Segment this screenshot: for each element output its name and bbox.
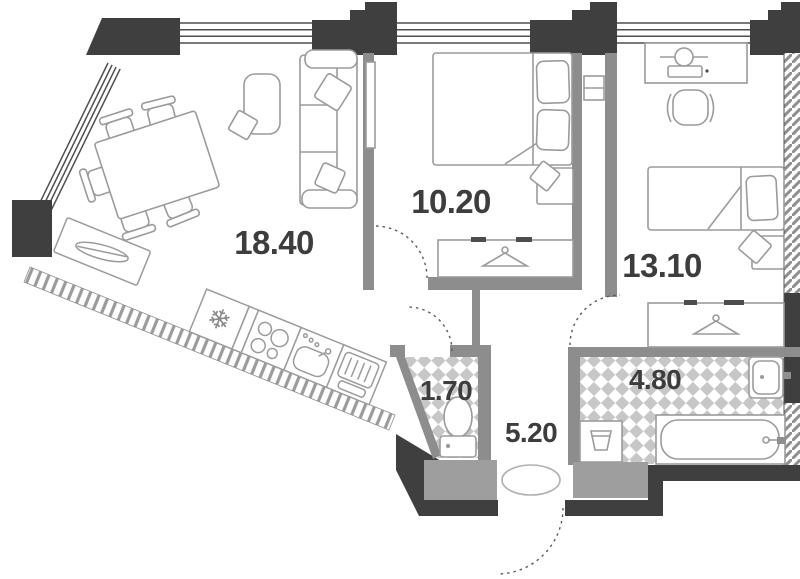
wall-bathroom-left	[568, 347, 580, 465]
window-1	[180, 23, 312, 43]
double-bed	[433, 53, 572, 165]
floor-plan-drawing: ❄	[0, 0, 800, 579]
wall-bedroom2-left	[605, 53, 617, 297]
wardrobe-handle	[471, 237, 486, 242]
wall-left-corner-block	[12, 200, 52, 257]
tv-panel	[366, 62, 375, 148]
room-label-bedroom-2: 13.10	[622, 247, 702, 285]
window-2	[397, 23, 530, 43]
wall-bathroom-bottom	[648, 465, 800, 481]
room-label-bathroom: 4.80	[629, 364, 681, 396]
room-label-living-kitchen: 18.40	[234, 224, 314, 262]
washing-machine	[580, 421, 622, 462]
bed-pillow	[536, 60, 569, 103]
wall-corner-top-left	[86, 18, 180, 55]
wall-wc-right	[478, 345, 491, 463]
bed-pillow	[536, 109, 569, 150]
wardrobe-handle	[516, 237, 532, 242]
wardrobe	[648, 300, 784, 347]
desk-chair	[668, 90, 714, 125]
wall-right-hatched-top	[784, 53, 800, 293]
wall-right-hatched-bottom	[784, 403, 800, 465]
desk	[645, 43, 747, 83]
door-swing-arc-wc	[408, 307, 452, 351]
block-below-wc	[424, 460, 497, 500]
block-right-of-entry	[573, 462, 648, 498]
keyboard	[668, 66, 702, 77]
rug	[502, 465, 560, 495]
nightstand	[530, 161, 573, 204]
floor-plan: ❄	[0, 0, 800, 579]
room-label-wc: 1.70	[420, 375, 472, 407]
door-swing-arc-bedroom2	[570, 295, 620, 345]
wardrobe-handle	[684, 300, 697, 305]
sink-faucet-icon	[783, 372, 791, 379]
room-label-bedroom: 10.20	[411, 183, 491, 221]
wall-corner-top-right	[750, 2, 800, 55]
bathtub	[656, 415, 786, 464]
door-swing-arc-bedroom1	[375, 226, 427, 278]
wall-wc-top-left	[390, 345, 405, 357]
wardrobe-handle	[724, 300, 744, 305]
room-label-hallway: 5.20	[505, 417, 557, 449]
nightstand	[738, 230, 784, 269]
wall-bottom-step	[648, 481, 663, 516]
bed-pillow	[746, 175, 778, 221]
window-3	[617, 23, 750, 43]
door-swing-arc-entry	[497, 508, 563, 574]
wardrobe	[438, 237, 573, 277]
wall-pier-1	[312, 2, 397, 55]
single-bed	[648, 167, 784, 230]
wall-hall-stub	[472, 290, 480, 347]
sofa	[300, 50, 357, 208]
wall-pier-2	[530, 2, 617, 55]
bedroom1-furniture	[433, 53, 573, 277]
wall-bedroom1-bottom	[428, 277, 582, 290]
wall-bathroom-top	[568, 347, 800, 357]
